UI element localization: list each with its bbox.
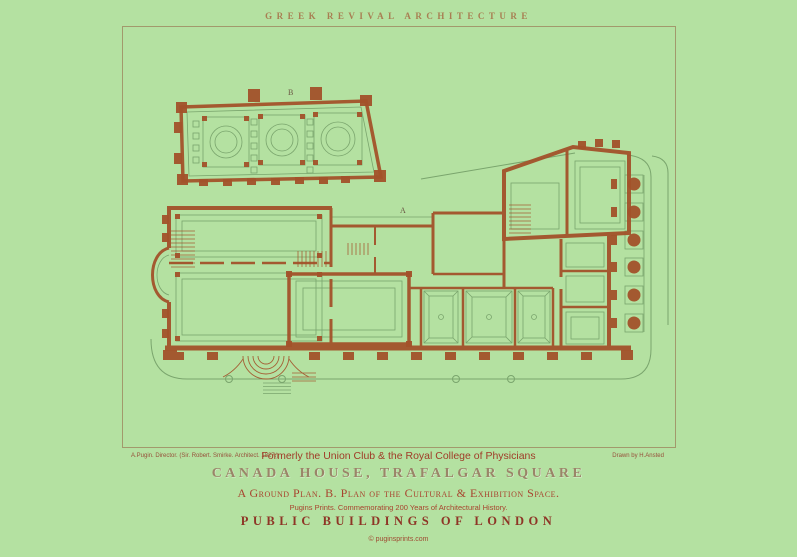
plan-key-caption: A Ground Plan. B. Plan of the Cultural &… (0, 486, 797, 501)
plan-label-b: B (288, 88, 293, 97)
floor-plan-drawing: B A (123, 27, 675, 447)
copyright-line: © puginsprints.com (0, 536, 797, 543)
entrance-steps (223, 356, 316, 381)
block-a-walls (153, 147, 632, 350)
building-subtitle: Formerly the Union Club & the Royal Coll… (0, 450, 797, 462)
credit-draughtsman: Drawn by H.Ansted (612, 453, 664, 459)
plan-frame: B A (122, 26, 676, 448)
page-title: GREEK REVIVAL ARCHITECTURE (0, 11, 797, 21)
building-title: CANADA HOUSE, TRAFALGAR SQUARE (0, 466, 797, 482)
series-note: Pugins Prints. Commemorating 200 Years o… (0, 503, 797, 512)
series-title: PUBLIC BUILDINGS OF LONDON (0, 514, 797, 529)
plan-label-a: A (400, 206, 406, 215)
poster: GREEK REVIVAL ARCHITECTURE (0, 0, 797, 557)
